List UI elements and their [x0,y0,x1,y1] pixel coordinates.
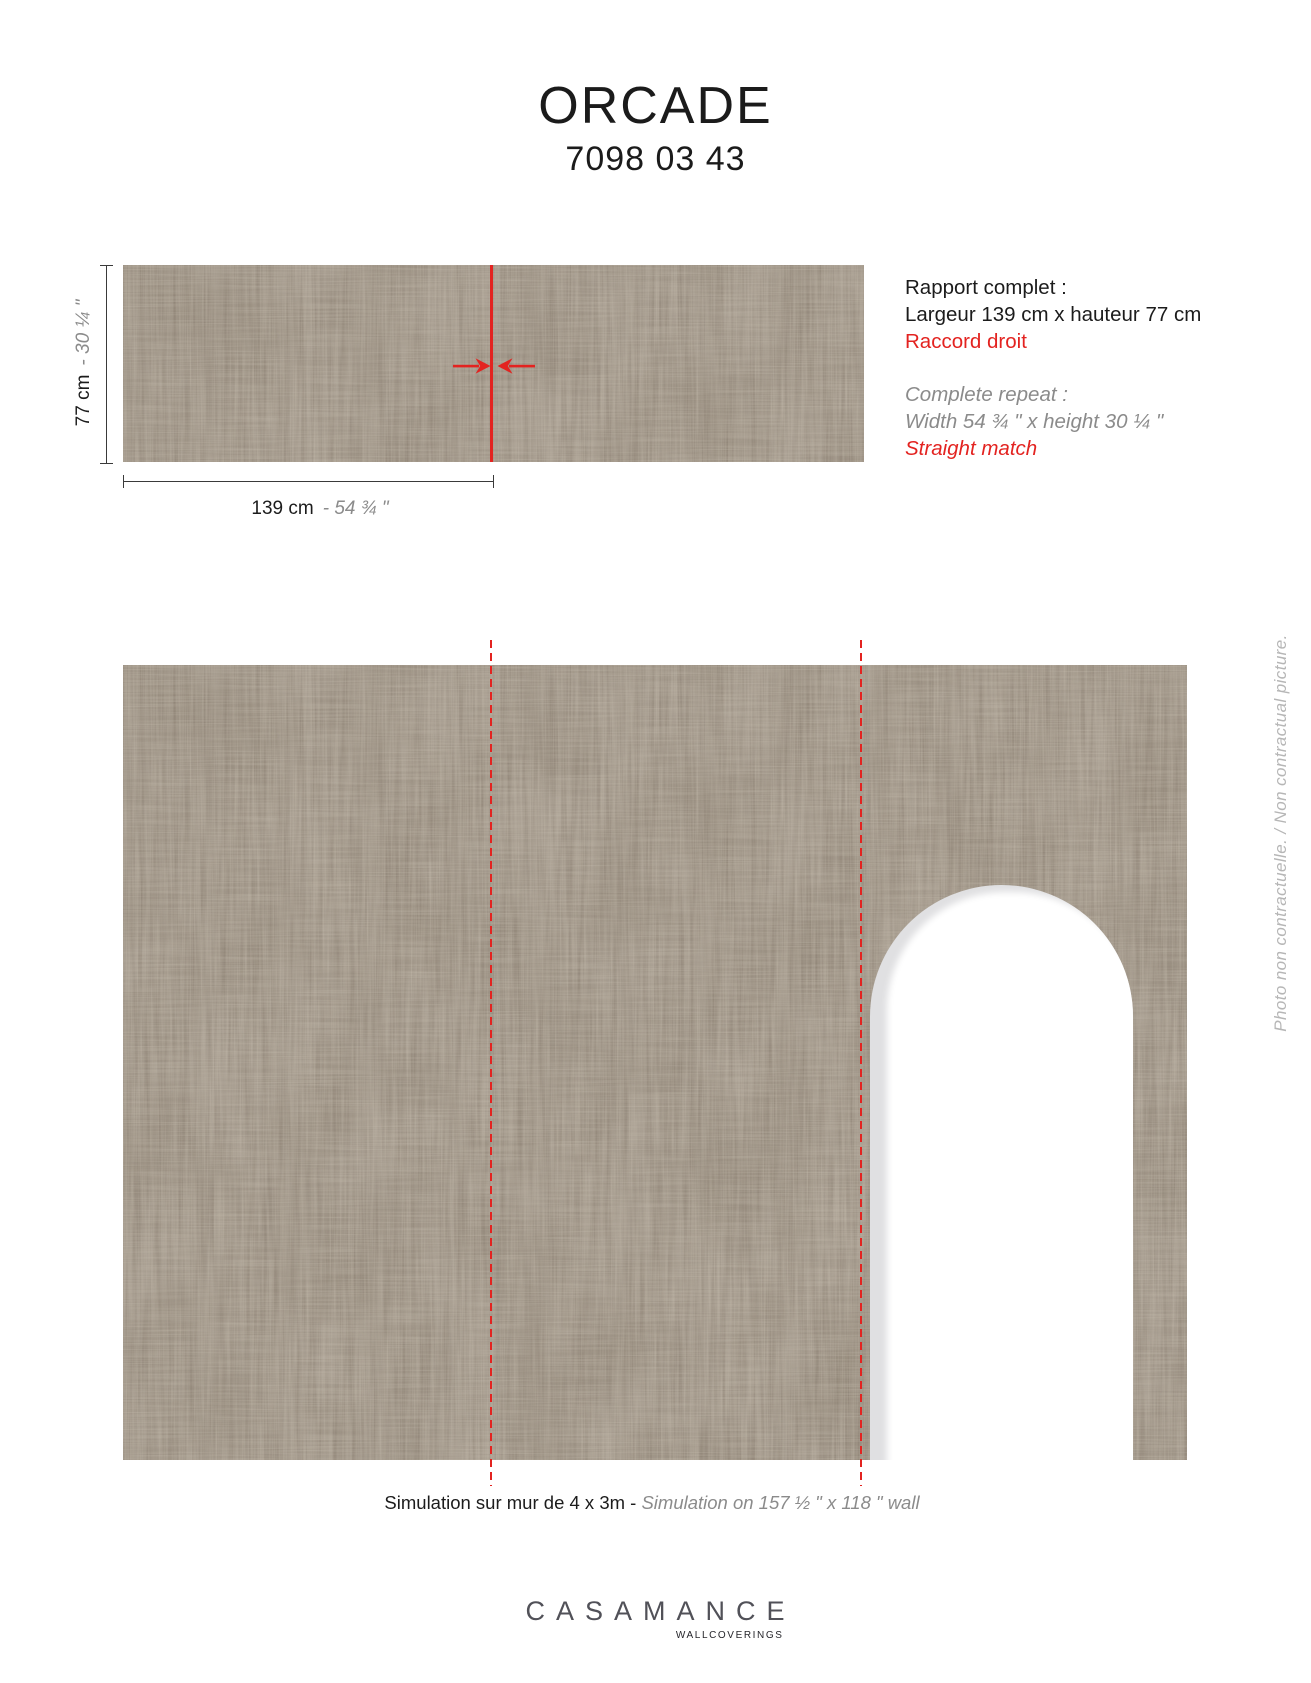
height-dimension-line [100,265,113,464]
spec-en-match: Straight match [905,435,1201,462]
brand-tagline: WALLCOVERINGS [525,1630,783,1641]
spec-fr-match: Raccord droit [905,328,1201,355]
spec-en-heading: Complete repeat : [905,381,1201,408]
arch-opening-highlight [887,892,1133,1460]
spec-spacer [905,355,1201,381]
brand-wordmark: CASAMANCE [525,1596,795,1627]
height-inches: - 30 ¼ " [73,300,94,366]
width-dimension-line [123,475,494,488]
caption-en: Simulation on 157 ½ " x 118 " wall [641,1492,919,1513]
width-inches: - 54 ¾ " [323,498,389,519]
wall-simulation [123,665,1187,1460]
simulation-caption: Simulation sur mur de 4 x 3m - Simulatio… [384,1492,919,1514]
repeat-match-arrows [452,355,536,377]
spec-block: Rapport complet : Largeur 139 cm x haute… [905,274,1201,462]
product-code: 7098 03 43 [0,140,1311,179]
height-dimension-label: 77 cm- 30 ¼ " [73,300,95,427]
width-cm: 139 cm [251,498,313,519]
dimension-bar [106,266,107,463]
spec-en-dimensions: Width 54 ¾ " x height 30 ¼ " [905,408,1201,435]
arch-opening [870,885,1133,1460]
dimension-bar [124,481,493,482]
arrow-left-icon [498,358,536,374]
non-contractual-note: Photo non contractuelle. / Non contractu… [1271,634,1291,1031]
spec-fr-dimensions: Largeur 139 cm x hauteur 77 cm [905,301,1201,328]
caption-fr: Simulation sur mur de 4 x 3m - [384,1492,641,1513]
height-cm: 77 cm [73,375,94,427]
repeat-swatch [123,265,864,462]
spec-fr-heading: Rapport complet : [905,274,1201,301]
page-title: ORCADE [0,76,1311,136]
product-sheet: ORCADE 7098 03 43 139 cm- 54 ¾ " [0,0,1311,1683]
brand-logo: CASAMANCE WALLCOVERINGS [525,1596,784,1641]
panel-seam-dashed-2 [860,640,862,1486]
width-dimension-label: 139 cm- 54 ¾ " [251,498,388,520]
panel-seam-dashed-1 [490,640,492,1486]
arrow-right-icon [453,358,491,374]
